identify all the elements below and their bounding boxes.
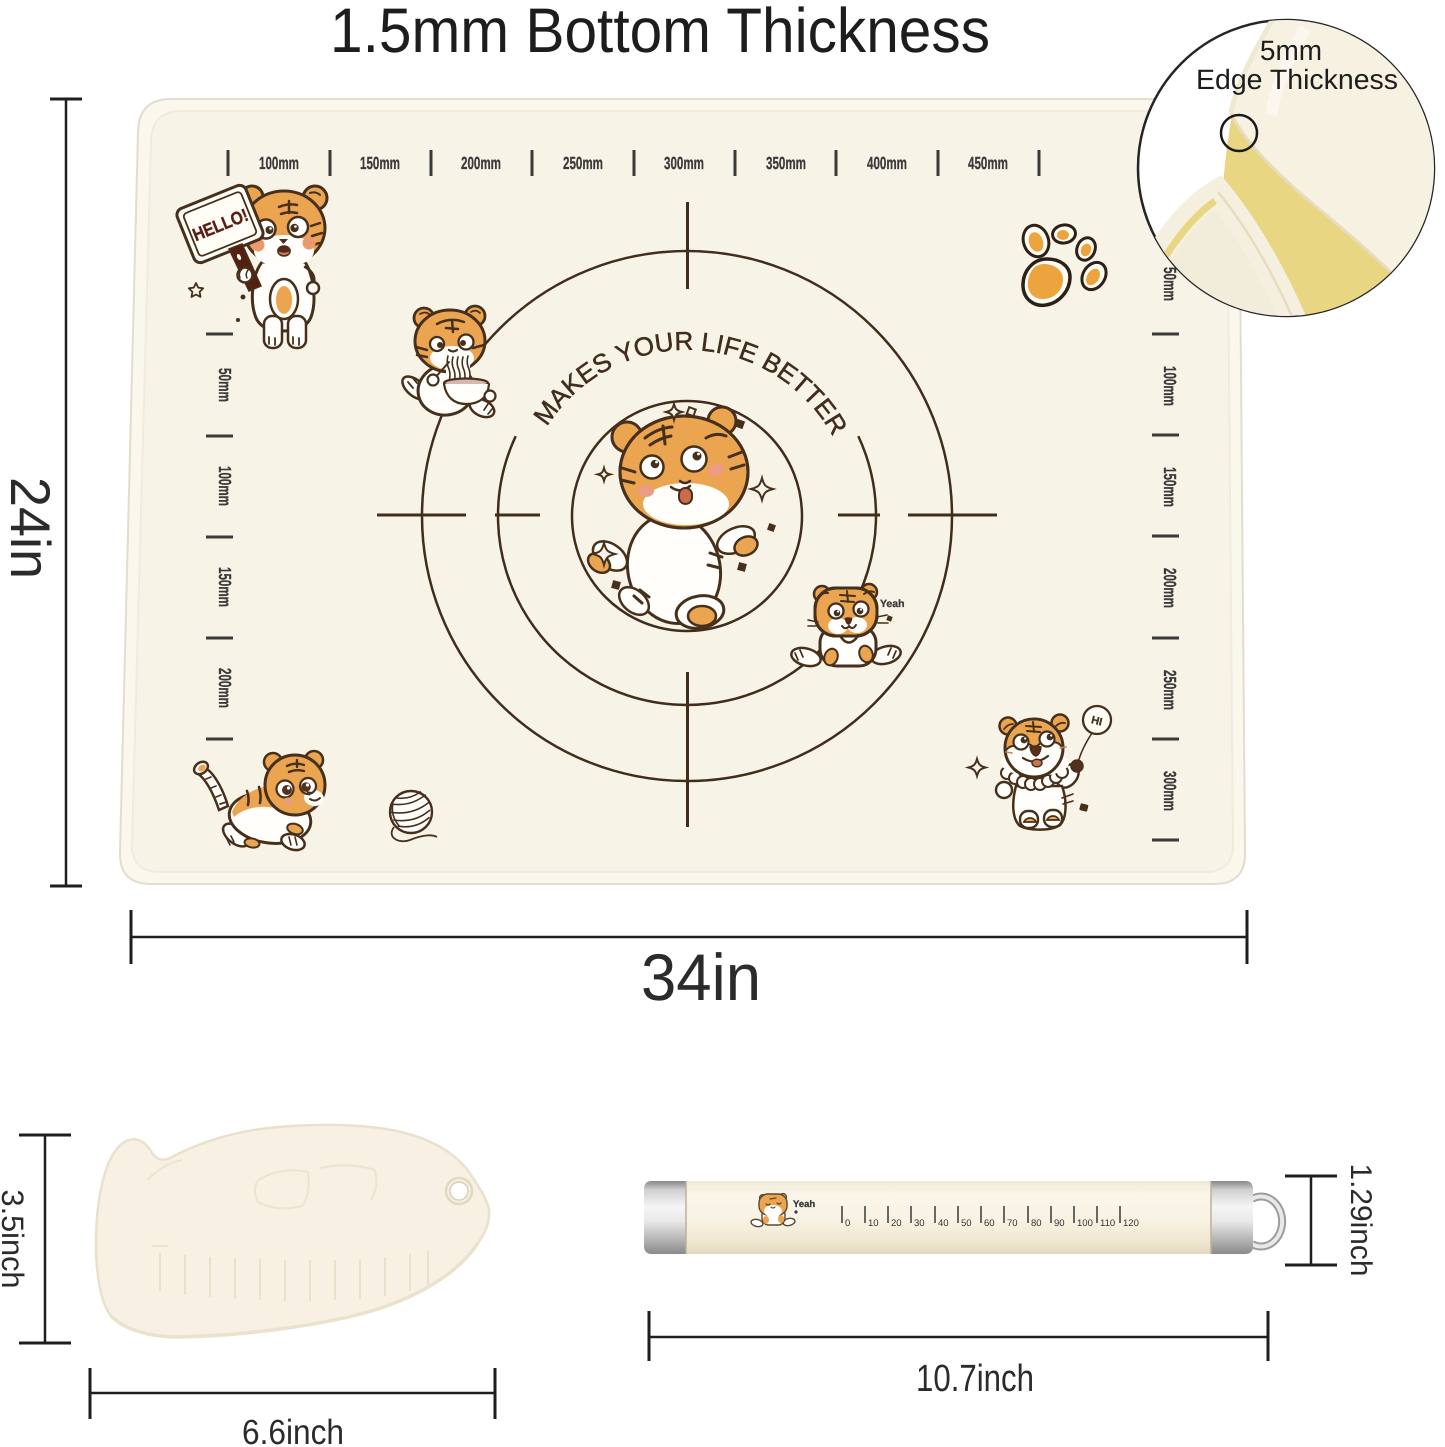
svg-text:6.6inch: 6.6inch	[242, 1413, 344, 1447]
svg-text:150mm: 150mm	[360, 153, 400, 173]
svg-text:50mm: 50mm	[215, 368, 235, 402]
svg-text:200mm: 200mm	[215, 668, 235, 708]
svg-text:5mm: 5mm	[1260, 35, 1322, 66]
svg-text:150mm: 150mm	[1160, 467, 1180, 507]
svg-text:10: 10	[868, 1218, 879, 1229]
svg-text:450mm: 450mm	[968, 153, 1008, 173]
svg-text:40: 40	[938, 1218, 949, 1229]
svg-text:90: 90	[1054, 1218, 1065, 1229]
svg-text:34in: 34in	[641, 940, 761, 1014]
svg-text:1.5mm Bottom Thickness: 1.5mm Bottom Thickness	[330, 0, 990, 66]
svg-text:50mm: 50mm	[1160, 267, 1180, 301]
svg-text:10.7inch: 10.7inch	[916, 1358, 1034, 1400]
svg-text:100mm: 100mm	[1160, 366, 1180, 406]
svg-text:350mm: 350mm	[766, 153, 806, 173]
svg-text:Edge Thickness: Edge Thickness	[1196, 64, 1398, 95]
svg-text:60: 60	[984, 1218, 995, 1229]
svg-text:100: 100	[1077, 1218, 1093, 1229]
svg-text:24in: 24in	[0, 477, 62, 579]
svg-text:20: 20	[891, 1218, 902, 1229]
svg-text:250mm: 250mm	[563, 153, 603, 173]
svg-text:0: 0	[845, 1218, 850, 1229]
svg-text:300mm: 300mm	[1160, 771, 1180, 811]
svg-text:110: 110	[1100, 1218, 1115, 1229]
svg-text:3.5inch: 3.5inch	[0, 1190, 30, 1289]
svg-text:80: 80	[1031, 1218, 1042, 1229]
svg-text:200mm: 200mm	[1160, 568, 1180, 608]
svg-text:200mm: 200mm	[461, 153, 501, 173]
svg-text:250mm: 250mm	[1160, 670, 1180, 710]
svg-text:150mm: 150mm	[215, 567, 235, 607]
svg-text:Yeah: Yeah	[880, 598, 905, 610]
svg-text:120: 120	[1123, 1218, 1139, 1229]
svg-text:1.29inch: 1.29inch	[1344, 1164, 1377, 1277]
svg-text:300mm: 300mm	[664, 153, 704, 173]
svg-text:50: 50	[961, 1218, 972, 1229]
svg-text:400mm: 400mm	[867, 153, 907, 173]
svg-text:70: 70	[1007, 1218, 1018, 1229]
svg-text:100mm: 100mm	[259, 153, 299, 173]
svg-text:Yeah: Yeah	[793, 1199, 815, 1210]
svg-text:100mm: 100mm	[215, 466, 235, 506]
svg-text:30: 30	[914, 1218, 925, 1229]
